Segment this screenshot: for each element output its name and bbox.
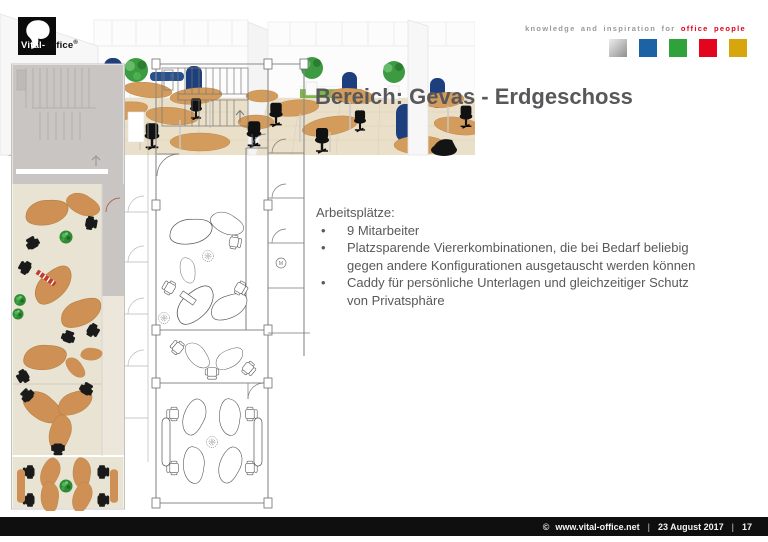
desk-outlines — [159, 209, 252, 331]
brand-color-squares — [609, 39, 747, 57]
doors — [157, 134, 266, 399]
caddy — [110, 469, 118, 503]
caddy — [17, 469, 25, 503]
footer-website: www.vital-office.net — [555, 522, 639, 532]
bullet-text: Platzsparende Viererkombinationen, die b… — [347, 239, 698, 274]
logo-wordmark: Vital-Office® — [21, 40, 78, 51]
up-arrow-icon — [236, 111, 244, 123]
footer-bar: © www.vital-office.net | 23 August 2017 … — [0, 517, 768, 536]
logo-wordmark-dark: Office — [45, 40, 73, 51]
floorplan-colored — [10, 62, 150, 511]
side-rooms — [124, 122, 148, 462]
tagline: knowledge and inspiration for office peo… — [525, 24, 746, 33]
bullet-text: 9 Mitarbeiter — [347, 222, 698, 240]
tagline-gray-text: knowledge and inspiration for — [525, 24, 675, 33]
circled-m-label: M — [279, 261, 283, 267]
page-title: Bereich: Gevas - Erdgeschoss — [315, 84, 633, 110]
footer-page-number: 17 — [742, 522, 752, 532]
desk-outlines — [168, 338, 258, 379]
list-heading: Arbeitsplätze: — [316, 204, 716, 222]
bullet-icon: • — [316, 222, 347, 240]
bullet-text: Caddy für persönliche Unterlagen und gle… — [347, 274, 698, 309]
palette-square-gold — [729, 39, 747, 57]
list-item: • Caddy für persönliche Unterlagen und g… — [316, 274, 698, 309]
bullet-icon: • — [316, 274, 347, 309]
stairs-landing — [16, 169, 108, 174]
workplaces-text-block: Arbeitsplätze: • 9 Mitarbeiter • Platzsp… — [316, 204, 716, 309]
logo-wordmark-white: Vital- — [21, 40, 45, 51]
palette-square-green — [669, 39, 687, 57]
list-item: • Platzsparende Viererkombinationen, die… — [316, 239, 698, 274]
footer-separator: | — [648, 522, 650, 532]
footer-date: 23 August 2017 — [658, 522, 724, 532]
palette-square-red — [699, 39, 717, 57]
bullet-icon: • — [316, 239, 347, 274]
registered-mark: ® — [73, 40, 78, 46]
floorplan-line: Steig — [148, 56, 310, 511]
viererkombination-outline — [162, 397, 262, 485]
stairs-label: Steig — [170, 73, 174, 81]
list-item: • 9 Mitarbeiter — [316, 222, 698, 240]
stairs — [162, 68, 248, 126]
plan-walls — [156, 64, 306, 503]
palette-square-silver — [609, 39, 627, 57]
presentation-slide: Vital-Office® knowledge and inspiration … — [0, 0, 768, 542]
tagline-red-text: office people — [681, 24, 746, 33]
palette-square-blue — [639, 39, 657, 57]
copyright-icon: © — [543, 522, 550, 532]
footer-separator: | — [732, 522, 734, 532]
